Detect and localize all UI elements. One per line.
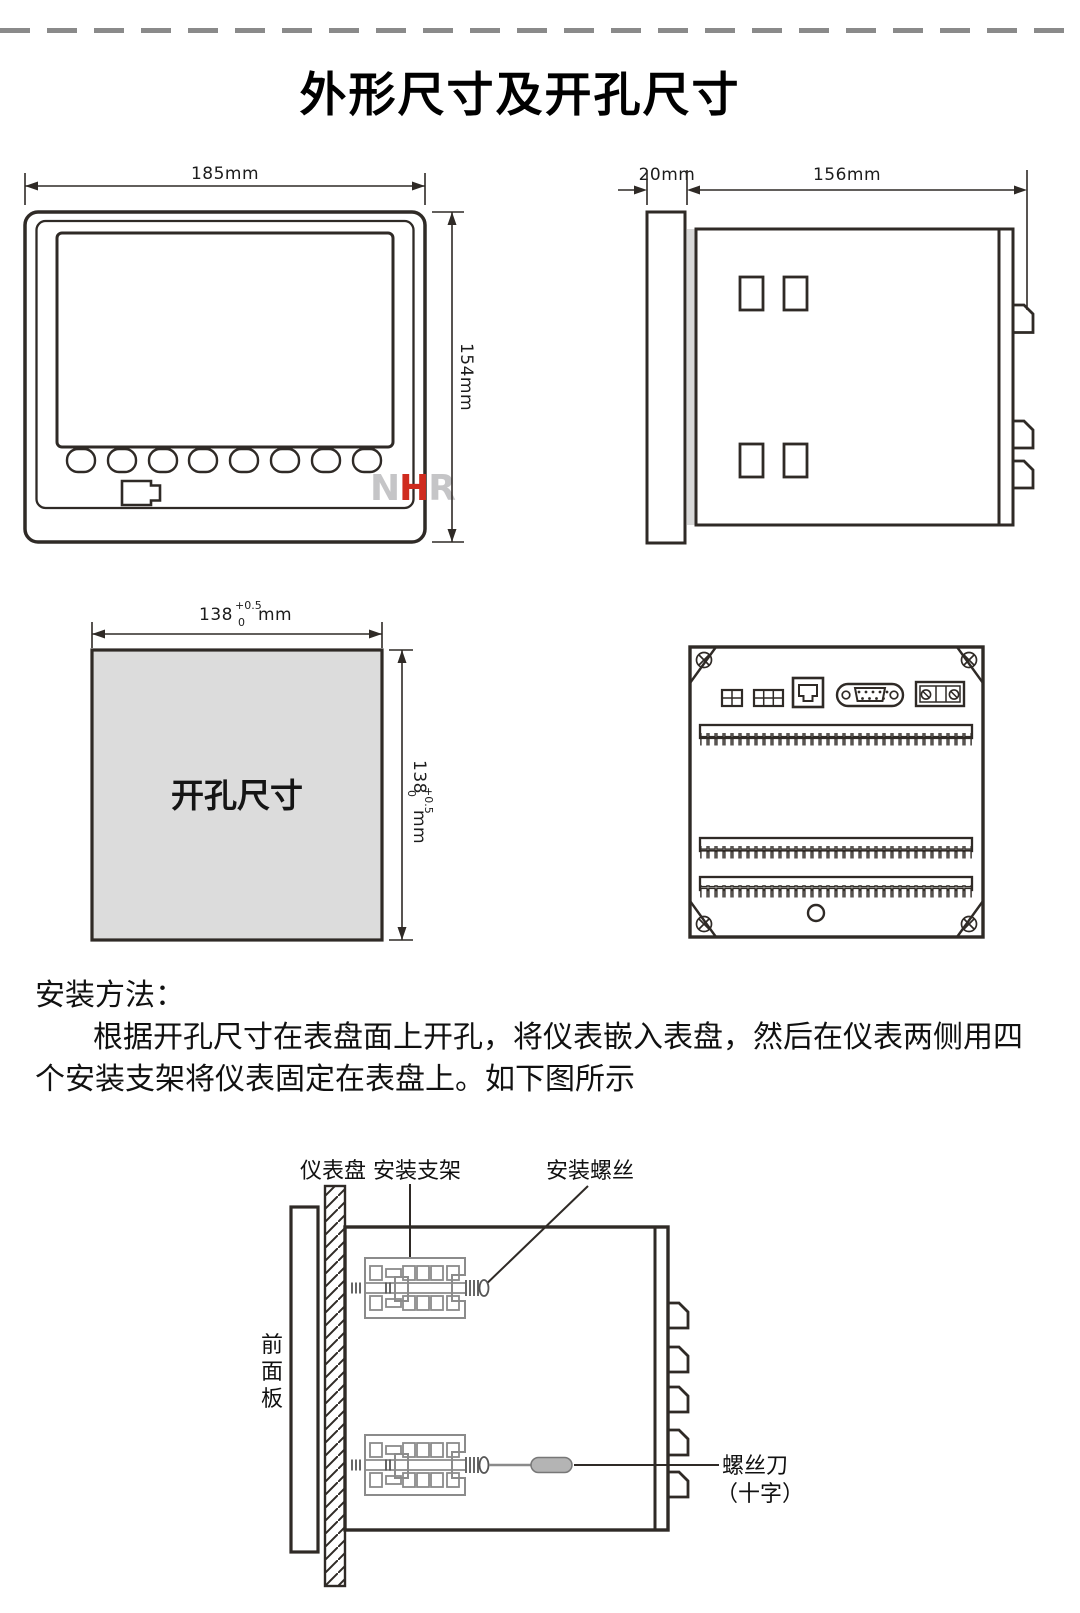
screwdriver-icon: [489, 1458, 572, 1473]
front-panel-rect: [291, 1207, 318, 1552]
side-body: [696, 229, 1013, 525]
rear-ground-hole: [808, 905, 824, 921]
side-depth-label: 156mm: [813, 165, 881, 185]
front-button: [271, 449, 299, 472]
cutout-width-label: 138 +0.5 0 mm: [199, 599, 292, 629]
svg-text:mm: mm: [258, 605, 292, 625]
front-button: [149, 449, 177, 472]
mounting-bracket: [352, 1435, 489, 1495]
panel-label: 仪表盘: [300, 1158, 366, 1183]
front-button: [312, 449, 340, 472]
install-text-line: 个安装支架将仪表固定在表盘上。如下图所示: [35, 1059, 1047, 1101]
screwdriver-type-label: （十字）: [716, 1481, 804, 1506]
front-height-label: 154mm: [456, 343, 476, 411]
side-terminal-tabs: [1013, 305, 1033, 488]
svg-text:前: 前: [261, 1332, 283, 1357]
front-panel-buttons: [67, 449, 381, 472]
svg-text:0: 0: [238, 616, 245, 629]
bracket-label: 安装支架: [373, 1158, 461, 1183]
terminal-strip: [700, 725, 972, 746]
svg-text:0: 0: [405, 790, 418, 797]
usb-port-icon: [122, 481, 160, 505]
page-top-dashed-divider: [0, 28, 1080, 33]
page-title: 外形尺寸及开孔尺寸: [0, 56, 1040, 125]
front-button: [230, 449, 258, 472]
cutout-view-diagram: 138 +0.5 0 mm 开孔尺寸 138 +0.5 0 mm: [55, 570, 480, 960]
front-panel-vertical-label: 前 面 板: [261, 1332, 283, 1411]
ethernet-port-icon: [793, 678, 823, 707]
screwdriver-label: 螺丝刀: [722, 1453, 788, 1478]
terminal-strip: [700, 877, 972, 898]
cutout-width-dimension: [92, 622, 382, 648]
front-button: [189, 449, 217, 472]
body-terminal-tabs: [668, 1303, 688, 1497]
rear-view-diagram: [645, 598, 1080, 963]
side-front-bezel: [647, 212, 685, 543]
install-text-line: 根据开孔尺寸在表盘面上开孔，将仪表嵌入表盘，然后在仪表两侧用四: [35, 1017, 1047, 1059]
nhr-logo: NHR: [370, 468, 455, 509]
instrument-panel-hatched-bar: [325, 1186, 345, 1586]
install-method-heading: 安装方法：: [35, 975, 1047, 1017]
mounting-bracket: [352, 1258, 489, 1318]
cutout-height-label: 138 +0.5 0 mm: [405, 760, 435, 844]
svg-text:138: 138: [199, 605, 233, 625]
screwdriver-label-group: 螺丝刀 （十字）: [716, 1453, 804, 1506]
device-outer-case: [25, 212, 425, 542]
mounting-screw-label: 安装螺丝: [546, 1158, 634, 1183]
rear-connector-3pin: [754, 690, 783, 706]
front-button: [108, 449, 136, 472]
power-terminal-icon: [916, 682, 964, 706]
svg-text:板: 板: [261, 1386, 283, 1411]
svg-text:面: 面: [261, 1359, 283, 1384]
installation-instructions: 安装方法： 根据开孔尺寸在表盘面上开孔，将仪表嵌入表盘，然后在仪表两侧用四 个安…: [35, 975, 1047, 1101]
front-view-diagram: 185mm NHR 154mm: [0, 158, 500, 558]
cutout-square-label: 开孔尺寸: [171, 778, 303, 815]
db9-serial-port-icon: [837, 684, 903, 706]
terminal-strip: [700, 838, 972, 859]
installation-diagram: 仪表盘 安装支架 安装螺丝 前 面 板: [225, 1125, 855, 1605]
side-view-diagram: 20mm 156mm: [580, 158, 1080, 558]
svg-text:mm: mm: [409, 810, 429, 844]
manual-page: 外形尺寸及开孔尺寸 185mm NHR: [0, 0, 1080, 1613]
side-bracket-slots: [740, 277, 807, 477]
front-width-label: 185mm: [191, 164, 259, 184]
rear-connector-2pin: [722, 690, 742, 706]
front-button: [67, 449, 95, 472]
device-screen: [57, 233, 393, 447]
side-dimensions: [618, 170, 1027, 310]
